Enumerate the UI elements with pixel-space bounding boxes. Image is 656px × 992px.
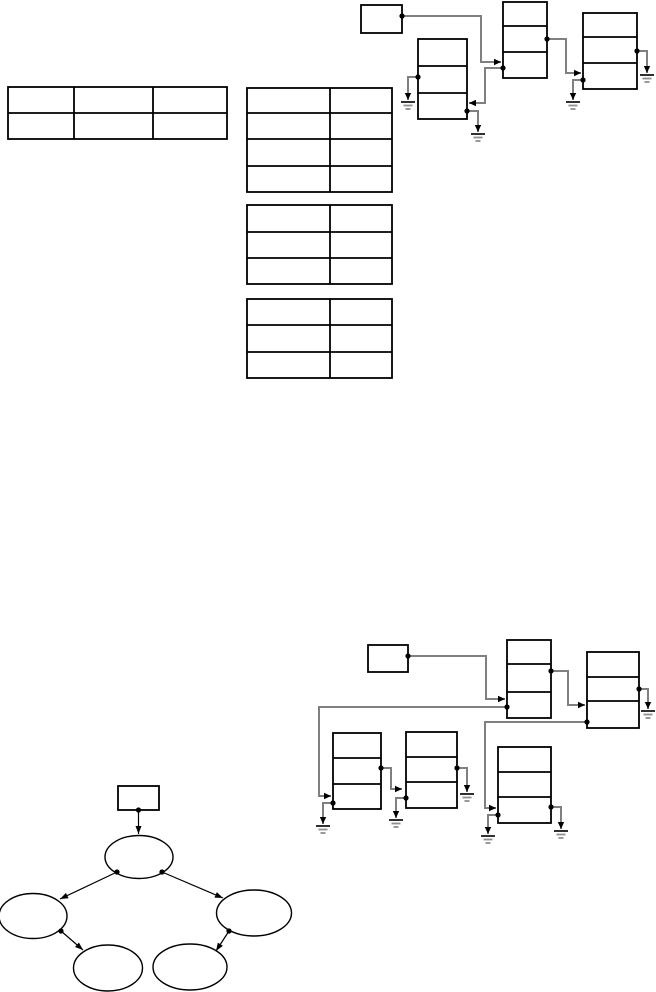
table-middle-2 xyxy=(247,205,392,284)
table-middle-3 xyxy=(247,299,392,378)
pointer-origin-dot xyxy=(58,928,63,933)
arrowhead-icon xyxy=(214,892,223,898)
arrowhead-icon xyxy=(136,826,142,834)
header-pointer-box xyxy=(361,5,402,33)
arrowhead-icon xyxy=(494,59,501,65)
list-node-left xyxy=(418,39,467,119)
pointer-header-to-root xyxy=(405,653,505,702)
ground-null-icon xyxy=(460,794,474,801)
table-middle-1 xyxy=(247,88,392,192)
arrowhead-icon xyxy=(320,817,326,824)
pointer-line xyxy=(469,68,503,103)
pointer-root-to-left xyxy=(469,65,506,106)
pointer-origin-dot xyxy=(378,765,383,770)
tree-edge-header-to-root xyxy=(136,807,142,834)
node-box xyxy=(418,39,467,119)
arrowhead-icon xyxy=(393,811,399,818)
node-box xyxy=(498,747,551,823)
pointer-root-to-right xyxy=(548,668,585,708)
table-outline xyxy=(247,205,392,284)
arrowhead-icon xyxy=(578,702,585,708)
pointer-origin-dot xyxy=(495,812,500,817)
tree-node-left-child xyxy=(0,894,67,939)
arrowhead-icon xyxy=(395,786,402,792)
list-node-root xyxy=(503,2,547,78)
arrowhead-icon xyxy=(558,822,564,829)
arrowhead-icon xyxy=(489,805,496,811)
pointer-null xyxy=(316,800,336,833)
list-node-right xyxy=(587,652,639,728)
pointer-origin-dot xyxy=(504,704,509,709)
pointer-null xyxy=(566,77,586,109)
pointer-line xyxy=(488,815,498,834)
pointer-line xyxy=(396,798,406,818)
pointer-line xyxy=(547,39,581,73)
table-outline xyxy=(247,299,392,378)
tree-edge-right-to-child xyxy=(216,928,232,951)
pointer-line xyxy=(551,671,585,705)
ground-null-icon xyxy=(471,134,485,141)
node-box xyxy=(406,732,457,808)
pointer-origin-dot xyxy=(548,804,553,809)
pointer-origin-dot xyxy=(634,48,639,53)
arrowhead-icon xyxy=(570,93,576,100)
node-box xyxy=(587,652,639,728)
arrowhead-icon xyxy=(475,125,481,132)
pointer-line xyxy=(573,80,583,100)
pointer-origin-dot xyxy=(454,765,459,770)
arrowhead-icon xyxy=(324,793,331,799)
arrowhead-icon xyxy=(645,702,651,709)
arrowhead-icon xyxy=(405,93,411,100)
tree-edge-root-to-left xyxy=(60,869,120,899)
pointer-line xyxy=(408,656,505,699)
arrowhead-icon xyxy=(574,70,581,76)
list-node-left-child xyxy=(406,732,457,808)
pointer-origin-dot xyxy=(544,36,549,41)
list-node-right xyxy=(583,13,637,89)
worksheet-page xyxy=(0,0,656,992)
pointer-line xyxy=(467,111,478,132)
table-outline xyxy=(247,88,392,192)
pointer-origin-dot xyxy=(399,13,404,18)
pointer-origin-dot xyxy=(330,800,335,805)
ground-null-icon xyxy=(401,102,415,109)
tree-header-box xyxy=(118,786,159,810)
arrowhead-icon xyxy=(216,943,223,951)
pointer-null xyxy=(464,108,485,141)
arrowhead-icon xyxy=(498,696,505,702)
list-node-right-child xyxy=(498,747,551,823)
tree-node-left-grandchild xyxy=(74,945,143,991)
ground-null-icon xyxy=(316,826,330,833)
pointer-origin-dot xyxy=(500,65,505,70)
pointer-origin-dot xyxy=(403,795,408,800)
pointer-origin-dot xyxy=(226,928,231,933)
ground-null-icon xyxy=(566,102,580,109)
arrowhead-icon xyxy=(60,893,69,899)
table-top-left-3col xyxy=(8,87,227,139)
tree-edge-line xyxy=(60,872,117,899)
linked-structure-bottom xyxy=(316,640,655,843)
pointer-origin-dot xyxy=(136,807,141,812)
arrowhead-icon xyxy=(485,827,491,834)
pointer-null xyxy=(481,812,501,843)
list-node-left xyxy=(333,733,381,809)
tree-edge-left-to-child xyxy=(58,928,83,950)
ground-null-icon xyxy=(641,711,655,718)
pointer-origin-dot xyxy=(584,719,589,724)
node-box xyxy=(507,640,551,718)
linked-structure-top xyxy=(361,2,654,141)
arrowhead-icon xyxy=(469,100,476,106)
arrowhead-icon xyxy=(464,785,470,792)
pointer-null xyxy=(389,795,409,827)
pointer-left-to-child xyxy=(378,765,402,792)
pointer-origin-dot xyxy=(548,668,553,673)
node-box xyxy=(583,13,637,89)
ground-null-icon xyxy=(554,831,568,838)
pointer-origin-dot xyxy=(464,108,469,113)
pointer-root-to-right xyxy=(544,36,581,76)
node-box xyxy=(333,733,381,809)
pointer-origin-dot xyxy=(159,869,164,874)
pointer-origin-dot xyxy=(114,869,119,874)
pointer-origin-dot xyxy=(415,74,420,79)
node-box xyxy=(503,2,547,78)
diagram-canvas xyxy=(0,0,656,992)
pointer-origin-dot xyxy=(405,653,410,658)
arrowhead-icon xyxy=(644,66,650,73)
header-pointer-box xyxy=(368,645,408,672)
binary-tree-diagram xyxy=(0,786,292,991)
ground-null-icon xyxy=(389,820,403,827)
pointer-origin-dot xyxy=(580,77,585,82)
tree-edge-root-to-right xyxy=(159,869,223,898)
tree-edge-line xyxy=(162,872,223,898)
pointer-line xyxy=(381,768,402,789)
pointer-line xyxy=(323,803,333,824)
list-node-root xyxy=(507,640,551,718)
pointer-origin-dot xyxy=(636,686,641,691)
ground-null-icon xyxy=(640,75,654,82)
ground-null-icon xyxy=(481,836,495,843)
